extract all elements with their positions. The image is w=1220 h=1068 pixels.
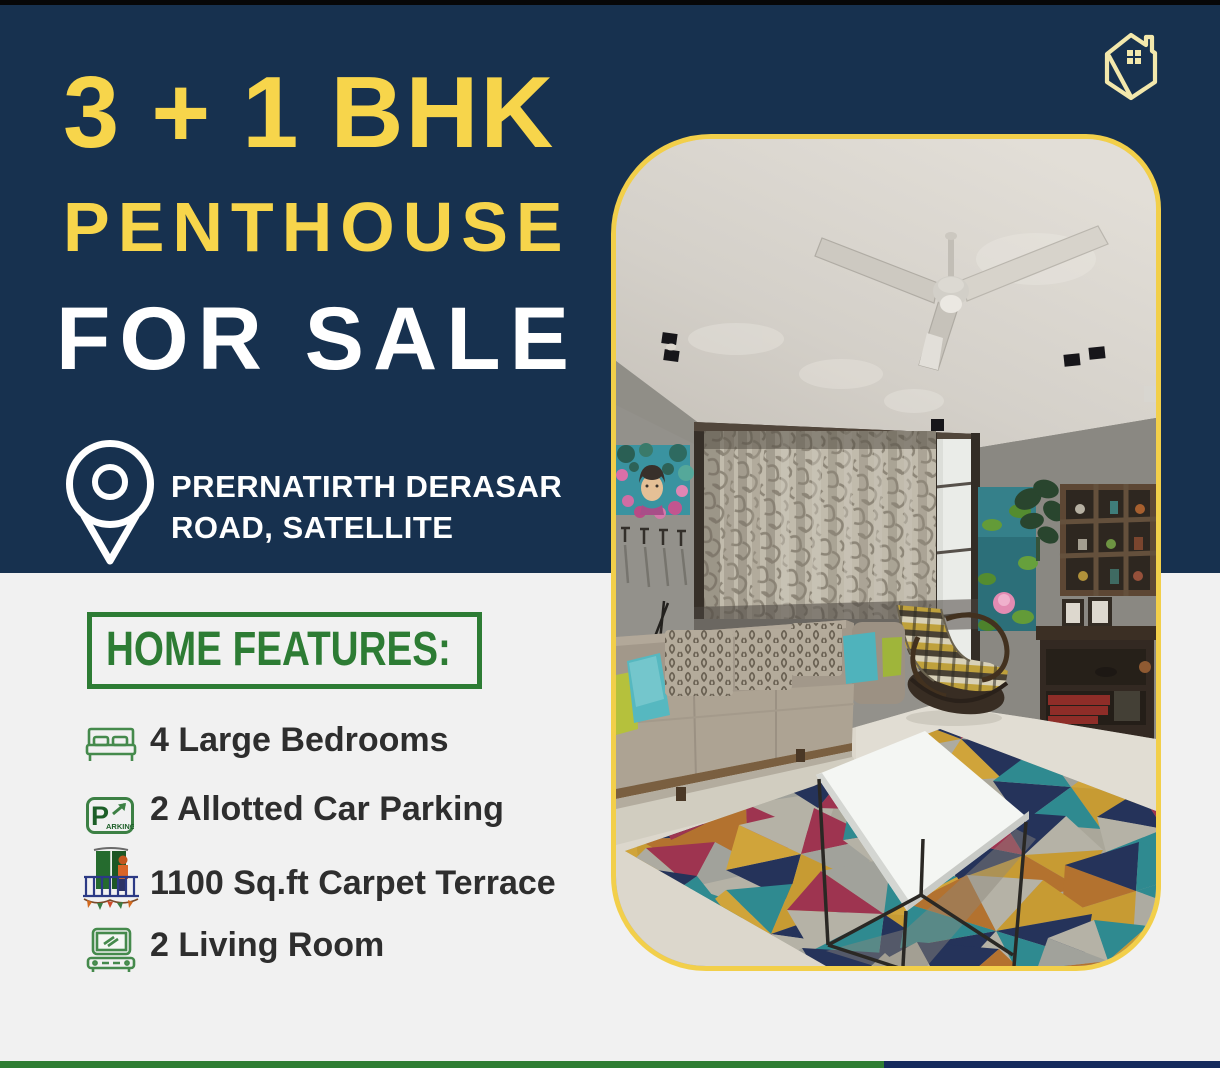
svg-text:ARKING: ARKING <box>106 822 134 831</box>
